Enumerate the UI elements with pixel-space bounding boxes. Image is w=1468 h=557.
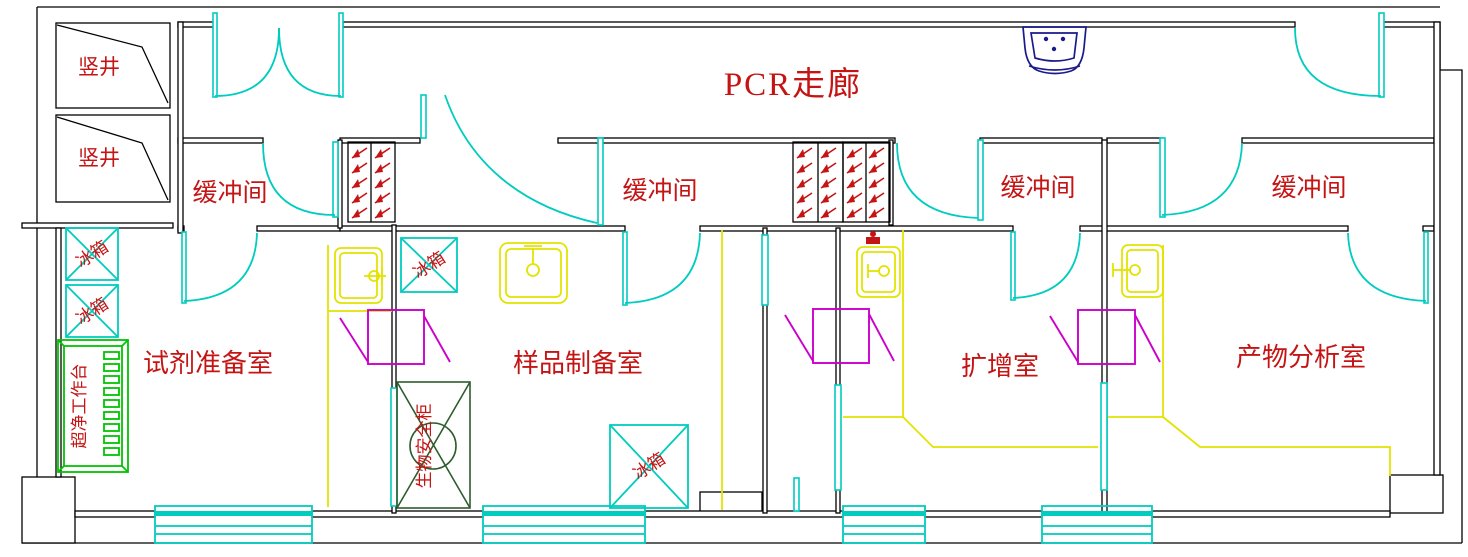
glass-partition (762, 235, 768, 305)
shaft-2: 竖井 (56, 115, 170, 202)
sink (335, 248, 386, 303)
amplification-room-door (1011, 232, 1080, 300)
shaft-1: 竖井 (56, 23, 170, 108)
red-faucet-icon (866, 231, 880, 244)
refrigerator: 冰箱 (66, 285, 118, 337)
corridor-double-door (213, 13, 343, 97)
buffer4-door (1160, 138, 1242, 217)
window (483, 506, 645, 543)
refrigerator: 冰箱 (610, 425, 688, 508)
window (843, 506, 925, 543)
refrigerator-label: 冰箱 (73, 294, 112, 328)
faucet-icon (527, 264, 539, 276)
pier-bottom-right (1390, 475, 1443, 513)
window (1042, 506, 1152, 543)
coat-rack (793, 142, 843, 222)
sink (500, 243, 567, 303)
buffer-label-1: 缓冲间 (192, 179, 267, 207)
vestibule-door (421, 95, 603, 225)
refrigerator-label: 冰箱 (630, 449, 669, 483)
floor-plan-svg: 竖井 竖井 冰箱 冰箱 (0, 0, 1468, 557)
refrigerator: 冰箱 (401, 238, 457, 292)
coat-rack (843, 142, 890, 222)
sample-room-door (623, 232, 700, 305)
coat-rack (348, 142, 395, 222)
sink (857, 231, 900, 297)
shaft-label: 竖井 (78, 146, 120, 170)
buffer-label-3: 缓冲间 (1000, 174, 1075, 202)
sink (1113, 245, 1163, 297)
clean-bench-label: 超净工作台 (70, 364, 89, 449)
glass-partition (1101, 383, 1107, 490)
buffer3-door (897, 140, 983, 220)
clean-bench: 超净工作台 (58, 340, 128, 472)
glass-partition (835, 385, 841, 490)
room-label-sample-prep: 样品制备室 (513, 349, 643, 378)
faucet-icon (879, 266, 889, 276)
buffer1-door (263, 142, 338, 217)
buffer-label-4: 缓冲间 (1271, 174, 1346, 202)
reagent-room-door (182, 232, 257, 303)
room-label-amplification: 扩增室 (961, 352, 1039, 381)
window (155, 506, 312, 543)
service-strip-door-leaf (794, 478, 799, 511)
pier-bottom-middle (700, 492, 762, 512)
bench-counters (328, 230, 1390, 510)
glass-partition (391, 388, 397, 506)
washbasin (1023, 27, 1086, 74)
biosafety-cabinet: 生物安全柜 (397, 382, 470, 508)
room-label-reagent-prep: 试剂准备室 (143, 349, 273, 378)
corridor-label: PCR走廊 (724, 66, 862, 103)
pier-bottom-left (22, 477, 75, 543)
analysis-room-door (1348, 232, 1428, 303)
refrigerator: 冰箱 (66, 228, 118, 280)
biosafety-cabinet-label: 生物安全柜 (415, 404, 434, 489)
shaft-label: 竖井 (78, 55, 120, 79)
refrigerator-label: 冰箱 (73, 237, 112, 271)
faucet-icon (1130, 265, 1140, 275)
room-label-product-analysis: 产物分析室 (1236, 343, 1366, 372)
corridor-right-door (1295, 13, 1384, 97)
buffer-label-2: 缓冲间 (622, 177, 697, 205)
